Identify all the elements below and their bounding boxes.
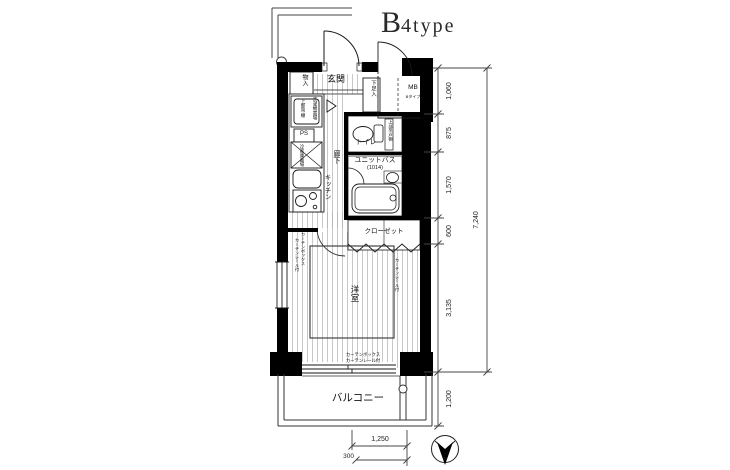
- dim-total-7240: 7,240: [473, 192, 483, 248]
- label-unit-bath: ユニットバス: [348, 157, 402, 164]
- label-kitchen: キッチン: [319, 174, 330, 214]
- label-curtain-rail: カーテンレール付: [330, 358, 396, 364]
- label-toilet-cabinet: 上部吊戸棚: [386, 120, 393, 152]
- label-balcony: バルコニー: [322, 393, 394, 405]
- label-entrance: 玄関: [318, 75, 354, 85]
- dim-600: 600: [446, 203, 456, 259]
- closet-doors: [348, 220, 420, 252]
- dim-bottom-300: 300: [336, 453, 354, 460]
- balcony-window: [302, 362, 396, 375]
- label-curtain-rail-left: カーテンレール付: [293, 238, 299, 296]
- label-curtain-rail-right: カーテンレール付: [393, 258, 399, 324]
- compass-north-label: N: [441, 457, 449, 462]
- label-shoe-cabinet: 下足入: [366, 80, 376, 110]
- label-meter-box: MB: [404, 84, 422, 91]
- label-hallway: 廊下: [329, 150, 340, 174]
- label-toilet: トイレ: [348, 139, 384, 147]
- label-washer-shelf: 上部吊棚: [297, 99, 306, 127]
- dim-balcony-1200: 1,200: [446, 371, 456, 427]
- label-meter-box-note: Bタイプ: [400, 95, 426, 99]
- plan-title: B4type: [381, 6, 455, 40]
- label-unit-bath-size: (1014): [356, 165, 394, 171]
- label-western-room: 洋室: [347, 285, 359, 315]
- plan-title-letter: B: [381, 6, 401, 39]
- floorplan-page: B4type 玄関 物入 下足入 MB Bタイプ 洗濯機置場 上部吊棚 PS 冷…: [0, 0, 730, 470]
- plan-title-rest: 4type: [401, 15, 455, 37]
- label-pipe-space: PS: [296, 131, 312, 138]
- dim-bottom-1250: 1,250: [357, 436, 403, 444]
- label-storage: 物入: [295, 74, 307, 98]
- label-curtain-note-bottom: カーテンボックス カーテンレール付: [330, 352, 396, 364]
- dim-3135: 3,135: [446, 280, 456, 336]
- meter-box: [378, 42, 420, 118]
- corridor-railing: [272, 8, 352, 67]
- label-fridge-space: 冷蔵庫置場: [295, 144, 304, 170]
- dim-875: 875: [446, 105, 456, 161]
- entrance-door: [322, 31, 362, 71]
- side-window: [275, 262, 289, 308]
- label-closet: クローゼット: [350, 228, 418, 235]
- label-washer-space: 洗濯機置場: [309, 97, 318, 129]
